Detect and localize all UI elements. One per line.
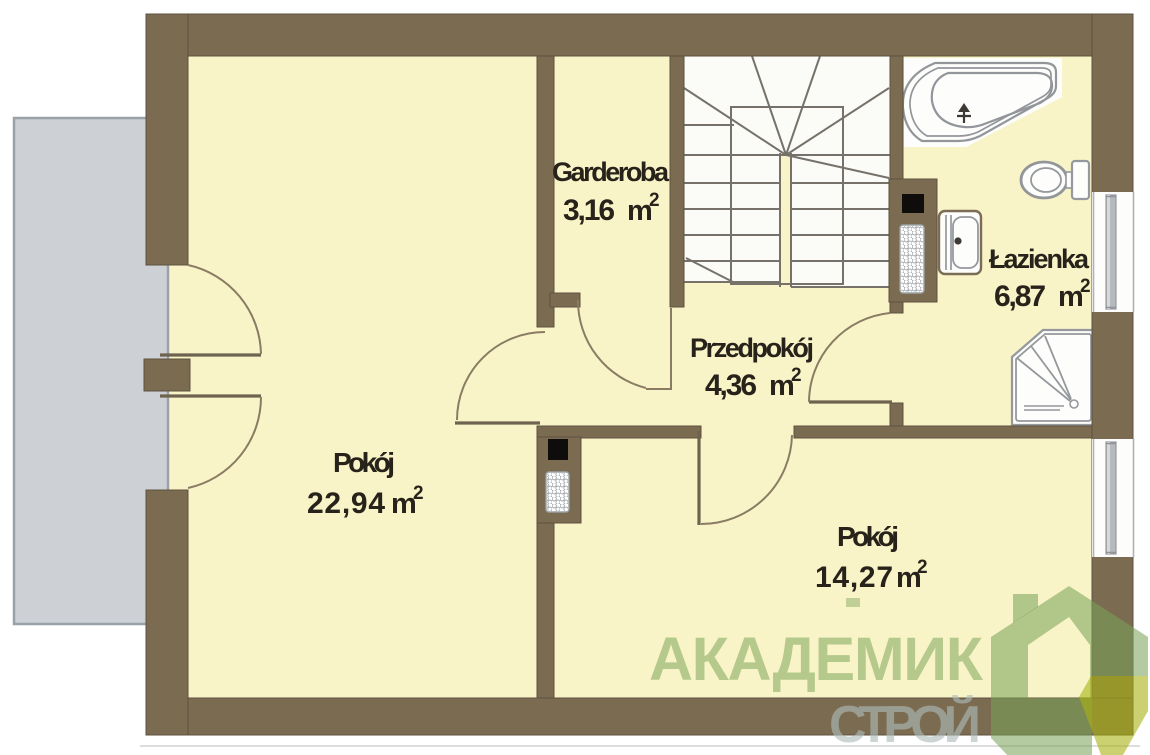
svg-text:14,27: 14,27: [815, 561, 893, 594]
svg-text:Garderoba: Garderoba: [552, 157, 670, 187]
svg-text:3,16: 3,16: [563, 194, 615, 227]
svg-text:Przedpokój: Przedpokój: [690, 333, 814, 363]
svg-text:2: 2: [791, 365, 802, 386]
svg-text:Pokój: Pokój: [333, 447, 395, 478]
svg-text:4,36: 4,36: [705, 369, 757, 402]
svg-text:АКАДЕМИК: АКАДЕМИК: [649, 625, 984, 693]
svg-text:СТРОЙ: СТРОЙ: [829, 695, 981, 754]
svg-text:Łazienka: Łazienka: [989, 244, 1090, 274]
svg-text:6,87: 6,87: [994, 280, 1046, 313]
svg-text:2: 2: [917, 557, 928, 578]
svg-text:2: 2: [649, 190, 660, 211]
svg-text:2: 2: [1080, 276, 1091, 297]
svg-text:22,94: 22,94: [307, 487, 385, 520]
svg-text:2: 2: [413, 483, 424, 504]
svg-text:Pokój: Pokój: [837, 521, 899, 552]
